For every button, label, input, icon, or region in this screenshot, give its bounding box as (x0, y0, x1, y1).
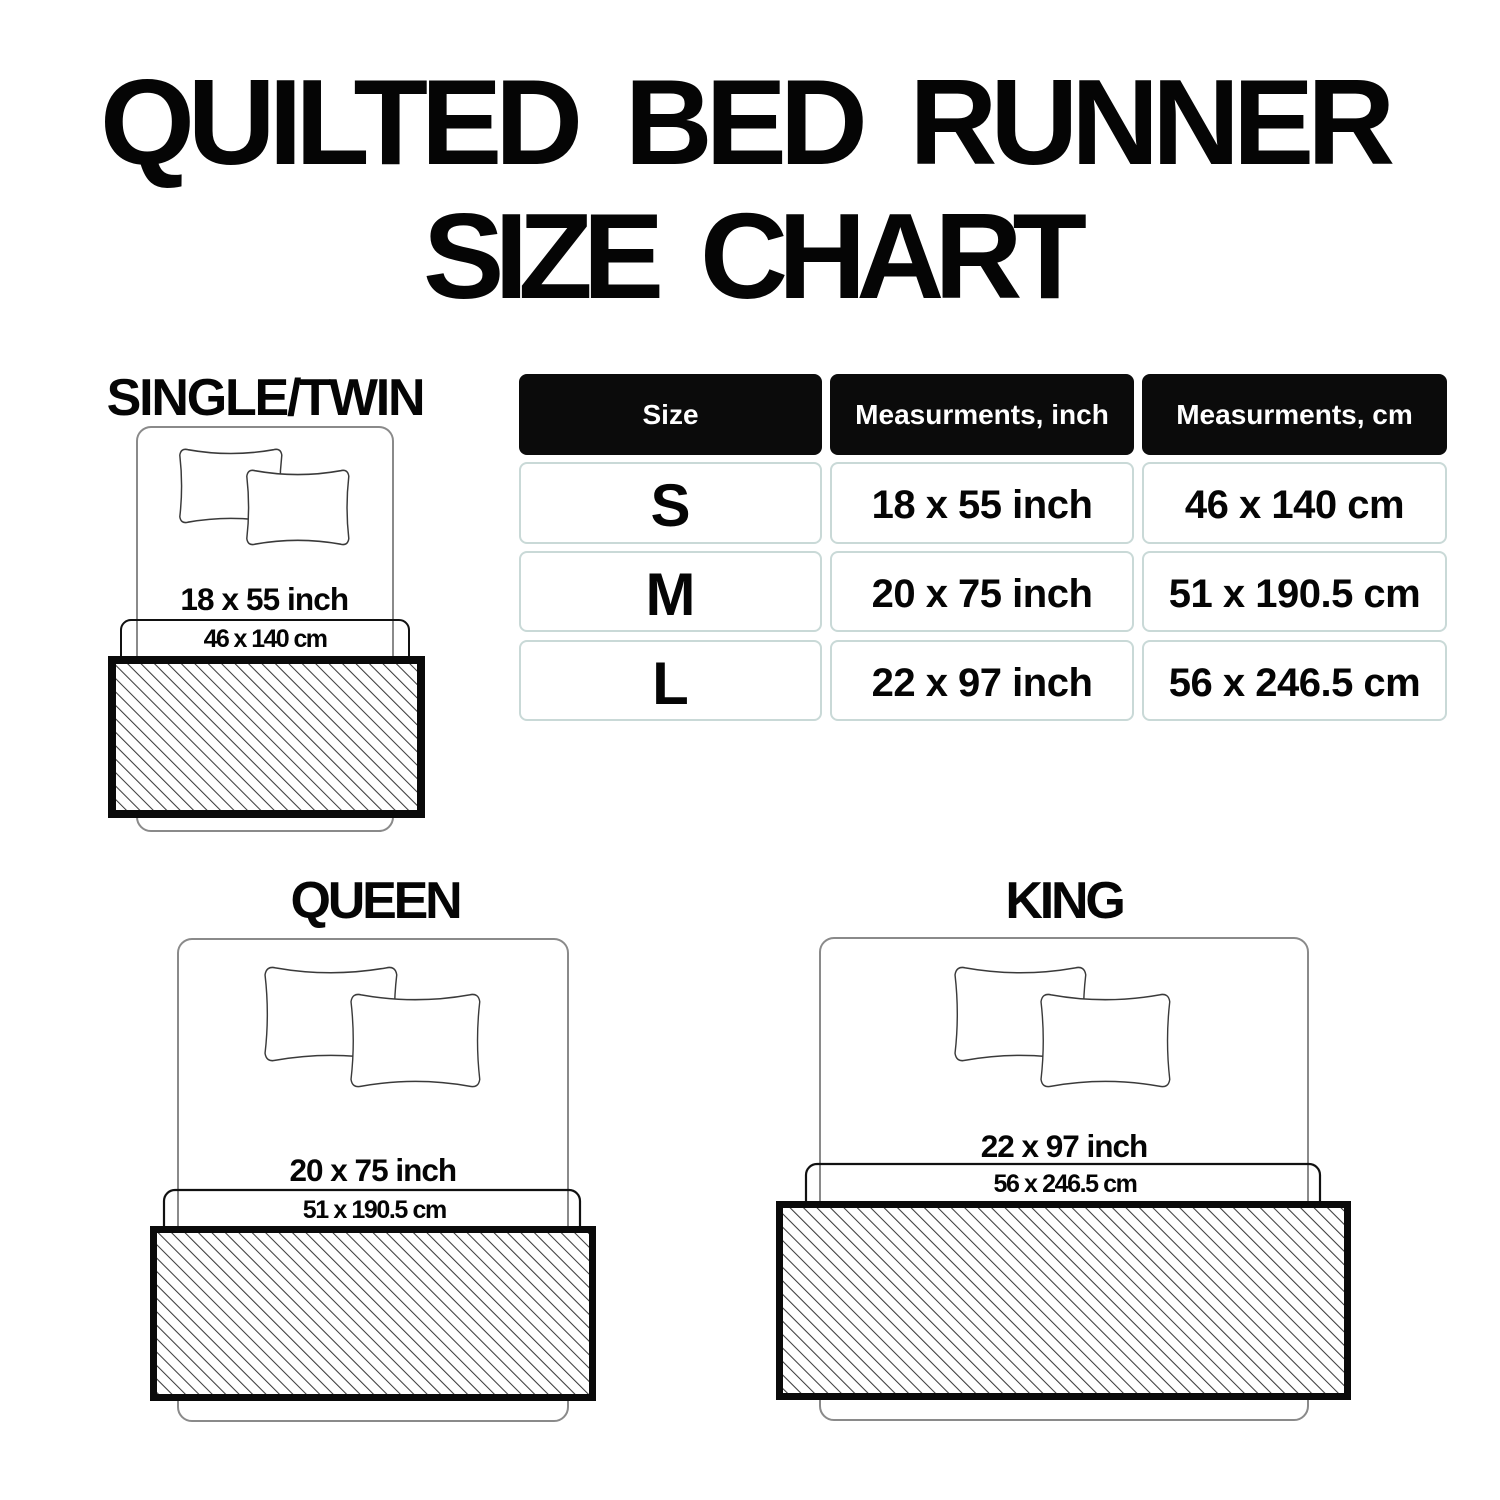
svg-text:46 x 140 cm: 46 x 140 cm (204, 625, 327, 653)
svg-text:51 x 190.5 cm: 51 x 190.5 cm (303, 1196, 446, 1224)
svg-text:22 x 97 inch: 22 x 97 inch (981, 1128, 1148, 1164)
svg-text:20 x 75 inch: 20 x 75 inch (289, 1152, 456, 1188)
svg-text:56 x 246.5 cm: 56 x 246.5 cm (993, 1170, 1136, 1198)
svg-text:18 x 55 inch: 18 x 55 inch (180, 581, 348, 617)
